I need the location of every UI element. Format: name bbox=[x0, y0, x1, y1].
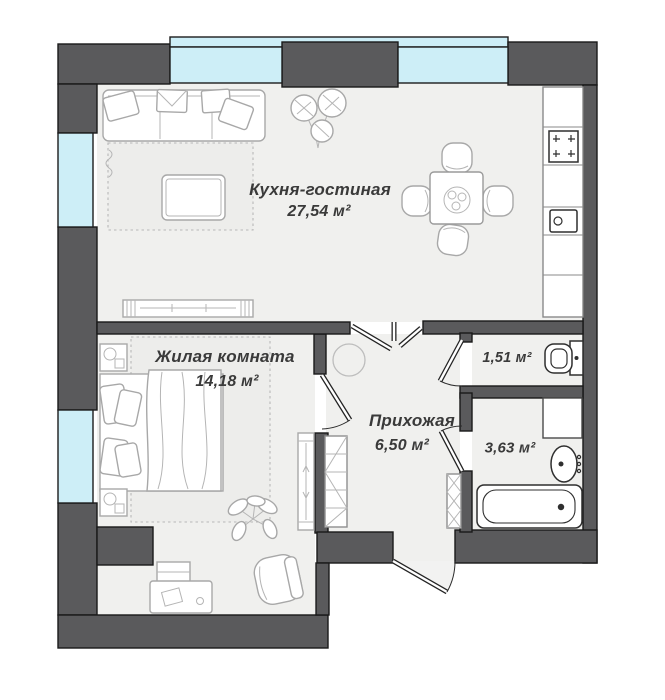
floor-entry-doorway bbox=[393, 532, 455, 563]
window-left-1 bbox=[58, 133, 93, 227]
label-toilet-area: 1,51 м² bbox=[482, 350, 531, 366]
label-hallway-name: Прихожая bbox=[369, 411, 455, 431]
kitchen-sink bbox=[550, 210, 577, 232]
label-bathroom-area: 3,63 м² bbox=[485, 440, 536, 457]
wall-entry-left bbox=[317, 532, 393, 563]
floor-plan bbox=[0, 0, 665, 700]
wall-living-bedroom bbox=[97, 322, 350, 334]
wall-top-right bbox=[508, 42, 597, 85]
dining-chair-bottom bbox=[436, 223, 470, 257]
tv-console bbox=[123, 300, 253, 317]
window-top-1 bbox=[170, 47, 282, 83]
wall-bath-left-bot bbox=[460, 471, 472, 532]
bathtub bbox=[477, 485, 582, 528]
dining-chair-right bbox=[483, 186, 513, 216]
label-bedroom-name: Жилая комната bbox=[155, 347, 294, 367]
hallway-closet bbox=[325, 436, 347, 527]
wall-toilet-bath bbox=[460, 386, 583, 398]
sofa bbox=[102, 89, 265, 141]
wall-top-pier bbox=[282, 42, 398, 87]
kitchen-counter bbox=[543, 87, 583, 317]
hallway-rack bbox=[447, 474, 461, 528]
toilet bbox=[545, 341, 583, 375]
label-hallway-area: 6,50 м² bbox=[375, 437, 429, 455]
wall-below-entry bbox=[316, 563, 329, 615]
label-kitchen-living-name: Кухня-гостиная bbox=[249, 180, 391, 200]
bedroom-wardrobe bbox=[298, 433, 314, 530]
label-bedroom-area: 14,18 м² bbox=[195, 373, 258, 391]
wall-bedroom-stub bbox=[97, 527, 153, 565]
dining-chair-left bbox=[402, 186, 432, 216]
nightstand-top bbox=[100, 344, 127, 371]
coffee-table bbox=[162, 175, 225, 220]
desk bbox=[150, 581, 212, 613]
nightstand-bottom bbox=[100, 489, 127, 516]
dining-table bbox=[430, 172, 483, 224]
wall-right bbox=[583, 85, 597, 563]
dining-chair-top bbox=[442, 143, 472, 173]
wall-hall-left-top bbox=[314, 334, 326, 374]
washing-machine bbox=[543, 398, 582, 438]
wall-top-left bbox=[58, 44, 170, 84]
window-top-2 bbox=[398, 47, 508, 83]
desk-shelf bbox=[157, 562, 190, 582]
label-kitchen-living-area: 27,54 м² bbox=[287, 203, 350, 221]
wall-left-upper bbox=[58, 84, 97, 133]
wall-bottom bbox=[58, 615, 328, 648]
wall-entry-right bbox=[455, 530, 597, 563]
wall-bath-left-top bbox=[460, 393, 472, 431]
stove bbox=[549, 131, 578, 162]
window-left-2 bbox=[58, 410, 93, 503]
wall-left-lower bbox=[58, 503, 97, 615]
floor-plan-page: Кухня-гостиная 27,54 м² Жилая комната 14… bbox=[0, 0, 665, 700]
wall-living-toilet bbox=[423, 321, 583, 334]
wall-left-middle bbox=[58, 227, 97, 410]
